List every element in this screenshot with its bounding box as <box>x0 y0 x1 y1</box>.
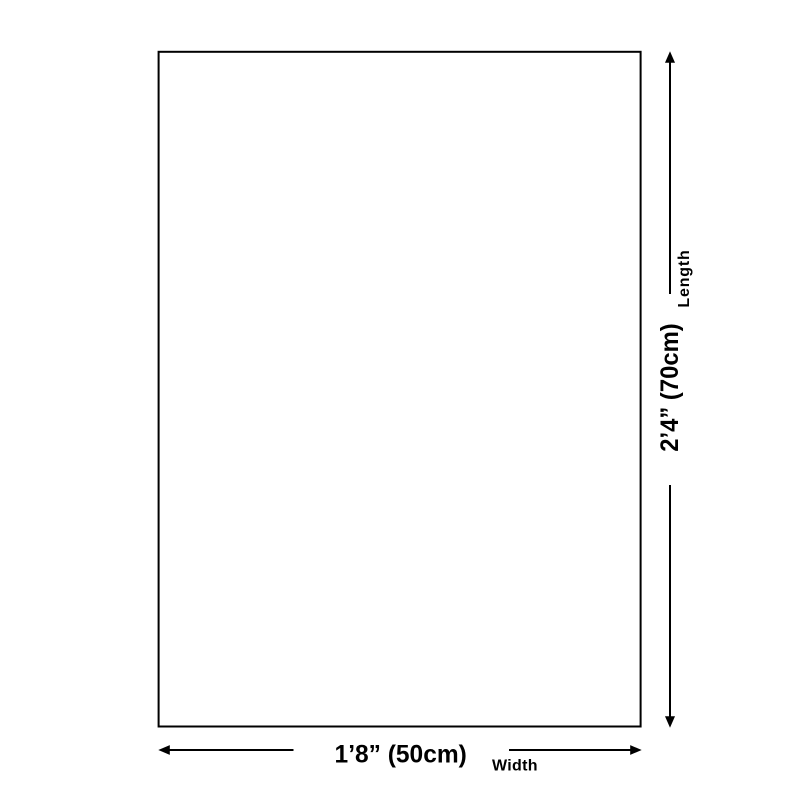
svg-text:2’4” (70cm): 2’4” (70cm) <box>656 323 684 452</box>
svg-text:1’8” (50cm): 1’8” (50cm) <box>335 740 467 768</box>
svg-text:Width: Width <box>492 757 538 774</box>
svg-text:Length: Length <box>676 249 693 307</box>
